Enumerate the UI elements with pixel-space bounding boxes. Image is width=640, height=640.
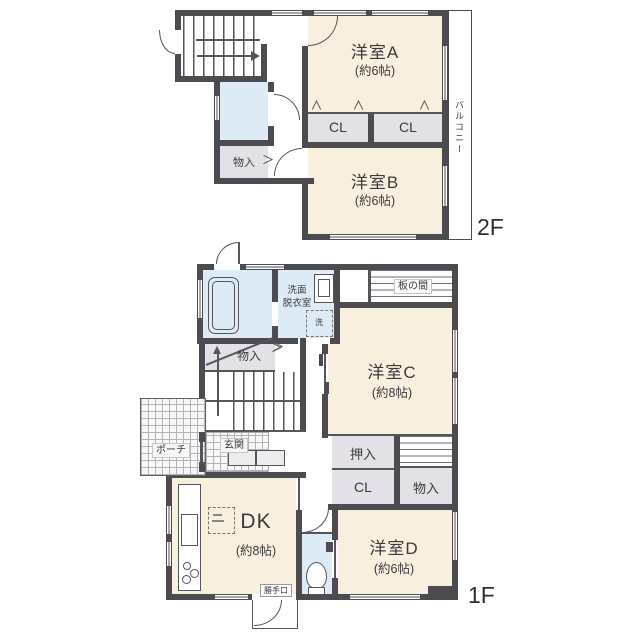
window [372, 10, 428, 16]
washing-machine-label: 洗 [315, 317, 323, 328]
toilet-tank-icon [308, 587, 325, 595]
stove-burner-icon [183, 562, 191, 570]
striped-nook-fill [400, 436, 452, 466]
wall [300, 338, 306, 432]
floor-plan: バルコニー 洋室A (約6帖) CL CL 洋室B (約6帖) 物入 2F [0, 0, 640, 640]
wall [261, 44, 267, 82]
bifold-door-icon [353, 100, 364, 109]
window [272, 10, 302, 16]
window [330, 234, 416, 240]
small-closet-1f-fill [340, 270, 368, 302]
stove-burner-icon [190, 569, 199, 578]
wall [302, 46, 308, 148]
dk-name: DK [240, 510, 271, 534]
wall [302, 178, 308, 240]
wall [197, 264, 203, 280]
wall [175, 54, 181, 76]
window [452, 378, 458, 424]
stairs-direction-line-2f [197, 55, 252, 57]
dk-size: (約8帖) [236, 540, 276, 559]
room-c-name: 洋室C [367, 358, 416, 383]
door-swing-icon [274, 341, 283, 352]
wall [272, 270, 278, 302]
wall [166, 472, 172, 600]
stairs-line [205, 400, 300, 402]
room-a-size: (約6帖) [355, 60, 395, 79]
stairs-treads-2f [183, 16, 261, 76]
door-swing-icon [264, 154, 273, 165]
refrigerator-mark [213, 514, 222, 516]
stairs-up-arrow-icon [213, 346, 221, 354]
bifold-door-icon [311, 100, 322, 109]
itanoma-label: 板の間 [394, 279, 432, 294]
room-c-size: (約8帖) [372, 382, 412, 401]
stairs-up-arrow-line [217, 354, 219, 416]
wall [199, 432, 205, 442]
window [166, 542, 172, 566]
closet-1f-label: CL [354, 479, 372, 495]
sliding-door-line [298, 478, 300, 510]
window [452, 330, 458, 372]
wall [334, 302, 458, 308]
room-d-size: (約6帖) [374, 558, 414, 577]
toilet-bowl-icon [306, 562, 327, 589]
door-arc [274, 148, 302, 176]
wall [214, 178, 314, 184]
storage-right-label: 物入 [413, 478, 439, 497]
window [215, 594, 248, 600]
stairs-direction-arrow-icon-2f [251, 51, 260, 61]
sliding-door-handle [325, 382, 329, 394]
door-arc [159, 30, 175, 54]
wall [175, 76, 267, 82]
wc-2f-fill [220, 82, 268, 140]
window [197, 280, 203, 318]
wall [214, 140, 268, 146]
floor-label-2f: 2F [477, 214, 504, 241]
bifold-door-icon [419, 100, 430, 109]
wall [284, 264, 458, 270]
entrance-label: 玄関 [220, 438, 248, 453]
wall [328, 504, 458, 510]
wall [268, 126, 274, 146]
wall [302, 142, 448, 148]
wall [268, 82, 274, 92]
balcony-label: バルコニー [453, 100, 466, 170]
room-d-name: 洋室D [369, 534, 418, 559]
porch-floor [140, 398, 206, 476]
shoe-cabinet [256, 450, 285, 466]
wall [199, 462, 205, 472]
toilet-handle [326, 542, 333, 552]
window [214, 96, 220, 120]
wall [197, 318, 203, 338]
door-leaf [238, 242, 240, 264]
bathtub-inner-line [212, 281, 235, 330]
door-arc [302, 508, 329, 533]
oshiire-label: 押入 [350, 444, 376, 463]
wall [272, 326, 278, 338]
floor-label-1f: 1F [468, 582, 495, 609]
porch-label: ポーチ [152, 443, 190, 458]
stove-burner-icon [182, 575, 191, 584]
wall [332, 578, 338, 594]
wall-notch [428, 586, 458, 600]
refrigerator-mark [212, 520, 224, 522]
washbasin-inner [318, 279, 330, 297]
washroom-label-line2: 脱衣室 [283, 297, 312, 310]
sliding-door-line [334, 540, 336, 578]
washroom-label: 洗面 脱衣室 [283, 284, 312, 310]
window [246, 264, 284, 270]
window [166, 506, 172, 534]
room-b-size: (約6帖) [355, 190, 395, 209]
closet-2-label: CL [399, 119, 417, 135]
washroom-label-line1: 洗面 [283, 284, 312, 297]
door-arc [216, 242, 239, 264]
entrance-door-leaf [200, 442, 203, 462]
window [452, 512, 458, 560]
stairs-switchback-line-2f [196, 39, 260, 41]
wall [332, 504, 338, 510]
door-arc [274, 94, 300, 120]
kitchen-sink-icon [181, 514, 198, 546]
window [350, 594, 420, 600]
back-door-label: 勝手口 [260, 584, 292, 597]
wall [332, 510, 338, 540]
wall [175, 10, 181, 30]
storage-2f-label: 物入 [233, 154, 255, 170]
room-c-fill [340, 308, 452, 344]
closet-1-label: CL [329, 119, 347, 135]
storage-stairs-label: 物入 [237, 347, 261, 364]
sliding-door-handle [319, 354, 323, 366]
wall [214, 120, 220, 178]
wall [214, 82, 220, 96]
